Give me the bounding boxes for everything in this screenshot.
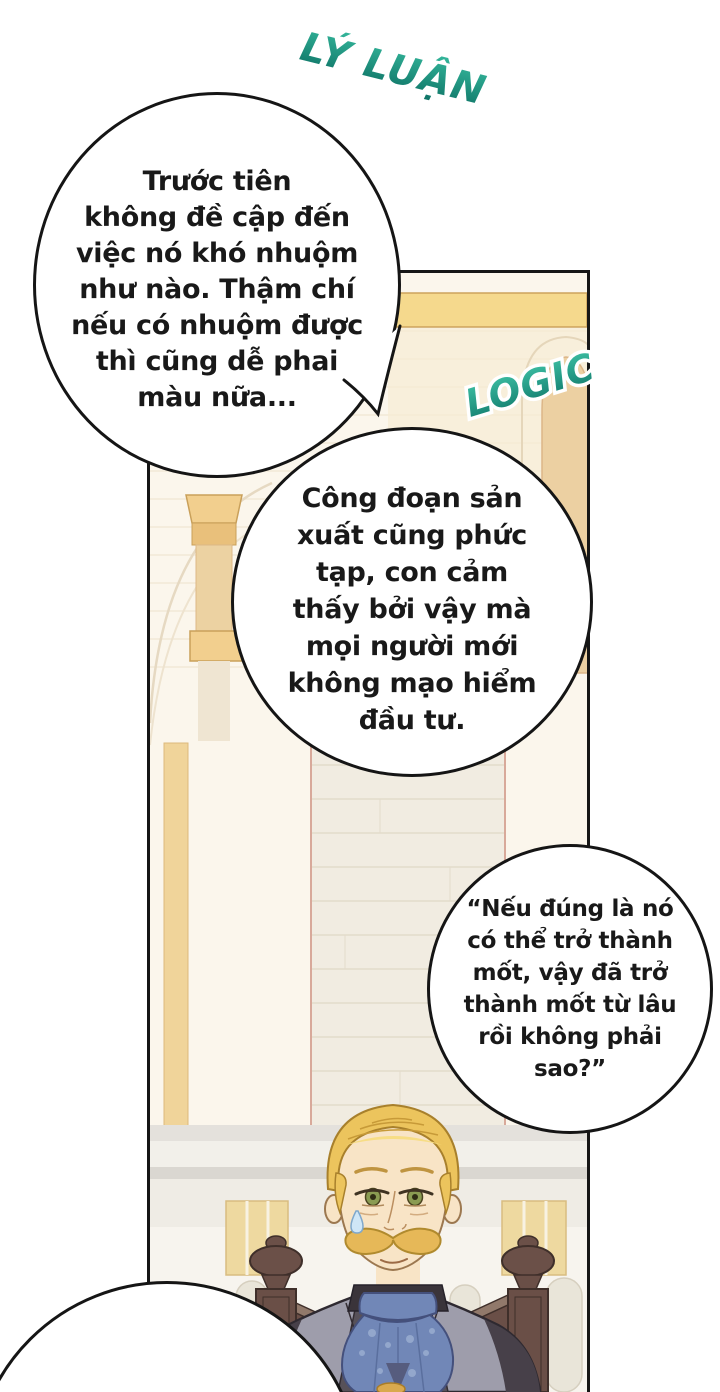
speech-bubble-2-text: Công đoạn sản xuất cũng phức tạp, con cả…: [288, 466, 537, 739]
sfx-ly-luan: LÝ LUẬN: [262, 16, 522, 136]
speech-bubble-1-tail: [332, 318, 416, 422]
gold-beam: [390, 293, 587, 327]
sfx-logic-text: LOGIC: [460, 345, 600, 426]
speech-bubble-1-text: Trước tiên không đề cập đến việc nó khó …: [71, 154, 363, 416]
cravat-pin: [377, 1383, 405, 1392]
speech-bubble-3: “Nếu đúng là nó có thể trở thành mốt, vậ…: [427, 844, 713, 1134]
character-cravat: [342, 1293, 453, 1392]
sfx-ly-luan-text: LÝ LUẬN: [296, 22, 491, 114]
speech-bubble-2: Công đoạn sản xuất cũng phức tạp, con cả…: [231, 427, 593, 777]
sfx-logic: LOGIC: [436, 328, 626, 443]
comic-page: Trước tiên không đề cập đến việc nó khó …: [0, 0, 720, 1392]
speech-bubble-3-text: “Nếu đúng là nó có thể trở thành mốt, vậ…: [464, 893, 677, 1085]
